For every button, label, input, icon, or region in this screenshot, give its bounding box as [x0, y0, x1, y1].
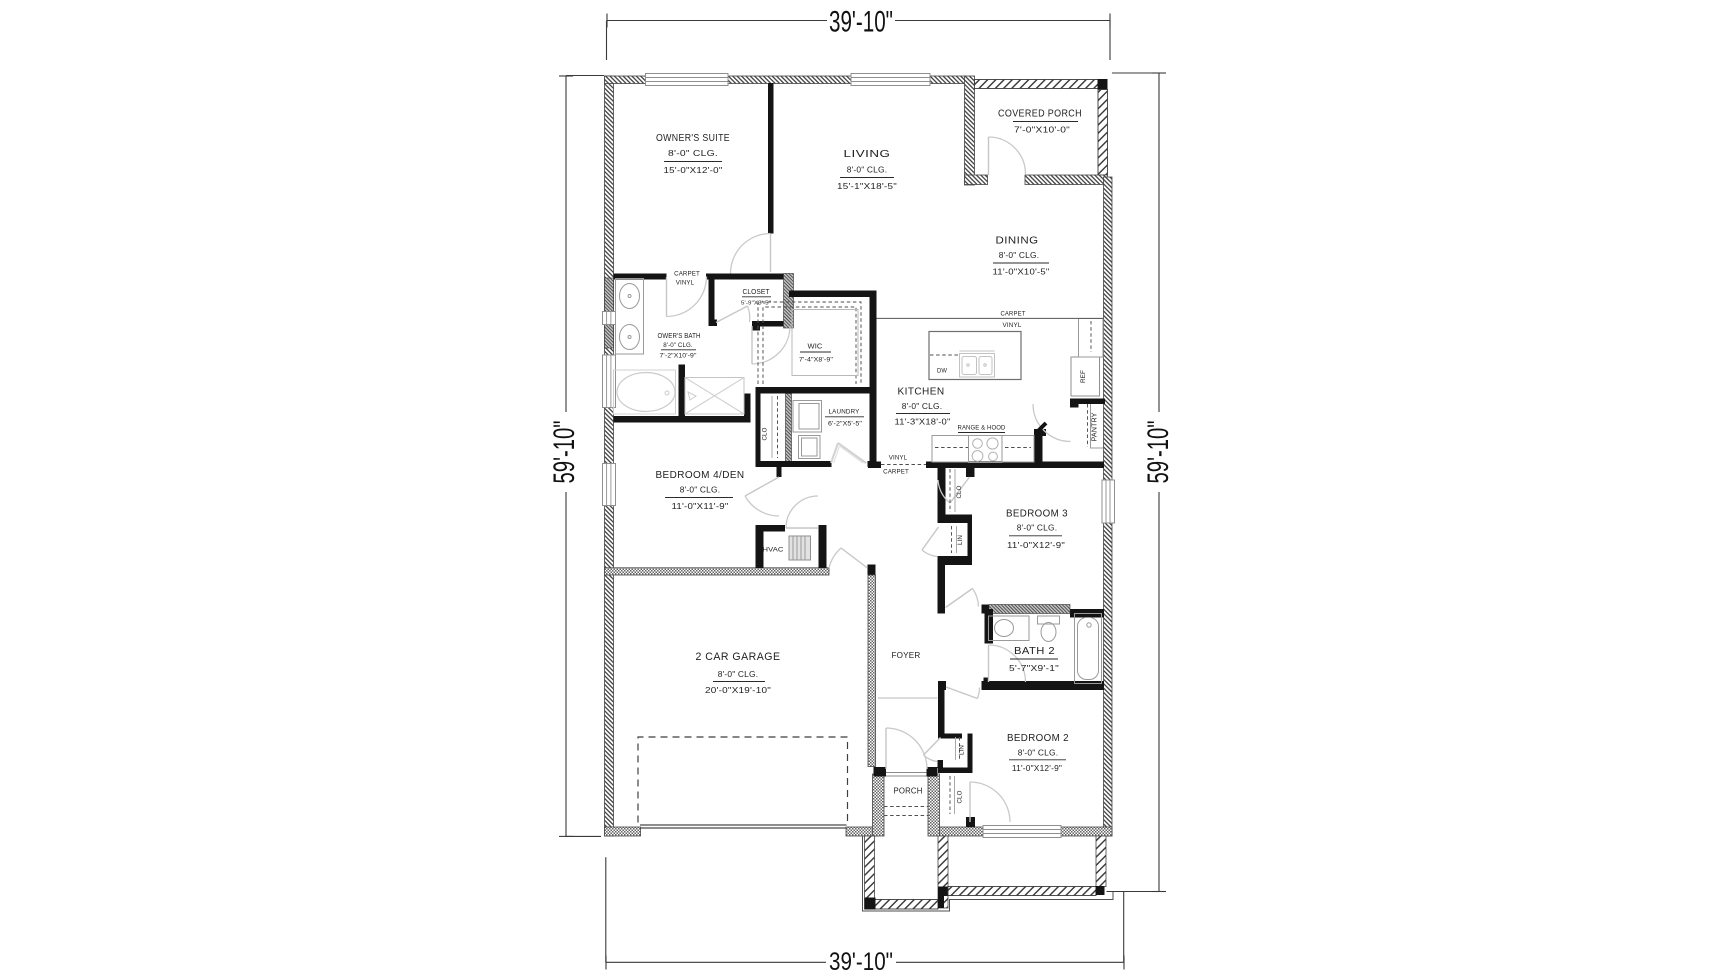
svg-text:8'-0" CLG.: 8'-0" CLG.: [718, 669, 759, 679]
svg-text:5'-7"X9'-1": 5'-7"X9'-1": [1009, 663, 1059, 673]
svg-text:CARPET: CARPET: [883, 469, 909, 476]
svg-text:DW: DW: [937, 368, 947, 375]
svg-text:CARPET: CARPET: [674, 271, 700, 278]
svg-text:8'-0" CLG.: 8'-0" CLG.: [999, 250, 1040, 260]
svg-text:REF: REF: [1080, 370, 1087, 383]
svg-text:15'-0"X12'-0": 15'-0"X12'-0": [664, 165, 723, 175]
svg-text:11'-0"X12'-9": 11'-0"X12'-9": [1007, 540, 1065, 550]
svg-text:LIN: LIN: [959, 745, 966, 755]
svg-text:20'-0"X19'-10": 20'-0"X19'-10": [705, 685, 771, 695]
svg-text:8'-0" CLG.: 8'-0" CLG.: [680, 485, 721, 495]
svg-text:7'-4"X8'-9": 7'-4"X8'-9": [799, 357, 833, 364]
svg-text:CLO: CLO: [956, 485, 963, 498]
svg-text:8'-0" CLG.: 8'-0" CLG.: [668, 148, 718, 158]
svg-text:7'-2"X10'-9": 7'-2"X10'-9": [660, 353, 697, 360]
svg-text:WIC: WIC: [808, 344, 823, 351]
svg-text:VINYL: VINYL: [889, 455, 908, 462]
svg-text:OWER'S BATH: OWER'S BATH: [658, 333, 701, 340]
svg-text:CLOSET: CLOSET: [743, 289, 771, 296]
svg-text:BEDROOM 4/DEN: BEDROOM 4/DEN: [656, 470, 745, 481]
svg-text:FOYER: FOYER: [892, 650, 921, 660]
svg-text:59'-10": 59'-10": [1142, 421, 1175, 484]
svg-text:15'-1"X18'-5": 15'-1"X18'-5": [837, 181, 897, 191]
svg-text:11'-3"X18'-0": 11'-3"X18'-0": [895, 417, 951, 427]
svg-text:11'-0"X11'-9": 11'-0"X11'-9": [672, 501, 729, 511]
svg-text:RANGE & HOOD: RANGE & HOOD: [958, 425, 1006, 432]
svg-text:CARPET: CARPET: [1001, 311, 1026, 318]
svg-text:HVAC: HVAC: [763, 547, 785, 554]
svg-text:LAUNDRY: LAUNDRY: [829, 409, 860, 416]
svg-text:COVERED PORCH: COVERED PORCH: [998, 109, 1082, 120]
svg-text:8'-0" CLG.: 8'-0" CLG.: [663, 342, 693, 349]
svg-text:11'-0"X10'-5": 11'-0"X10'-5": [993, 267, 1050, 277]
svg-text:VINYL: VINYL: [1003, 322, 1022, 329]
svg-text:LIVING: LIVING: [844, 149, 891, 160]
svg-text:39'-10": 39'-10": [829, 6, 893, 39]
svg-text:7'-0"X10'-0": 7'-0"X10'-0": [1014, 125, 1070, 135]
svg-text:LIN: LIN: [957, 535, 964, 545]
svg-text:OWNER'S SUITE: OWNER'S SUITE: [656, 133, 730, 144]
svg-text:BEDROOM 3: BEDROOM 3: [1006, 509, 1068, 520]
svg-text:DINING: DINING: [996, 236, 1039, 247]
svg-text:BEDROOM 2: BEDROOM 2: [1007, 733, 1069, 744]
svg-text:8'-0" CLG.: 8'-0" CLG.: [1018, 748, 1059, 758]
svg-text:KITCHEN: KITCHEN: [898, 387, 945, 398]
svg-text:PORCH: PORCH: [894, 786, 923, 796]
svg-text:CLO: CLO: [957, 790, 964, 803]
svg-text:BATH 2: BATH 2: [1014, 646, 1055, 657]
svg-text:8'-0" CLG.: 8'-0" CLG.: [1017, 523, 1058, 533]
svg-text:8'-0" CLG.: 8'-0" CLG.: [902, 401, 943, 411]
svg-text:PANTRY: PANTRY: [1092, 412, 1099, 441]
svg-text:6'-2"X5'-5": 6'-2"X5'-5": [828, 421, 862, 428]
svg-text:VINYL: VINYL: [676, 280, 695, 287]
svg-text:11'-0"X12'-9": 11'-0"X12'-9": [1012, 763, 1062, 773]
svg-text:59'-10": 59'-10": [548, 421, 581, 484]
svg-text:8'-0" CLG.: 8'-0" CLG.: [847, 165, 888, 175]
svg-text:CLO: CLO: [762, 427, 769, 440]
svg-text:5'-9"X3'-5": 5'-9"X3'-5": [741, 301, 771, 307]
svg-text:39'-10": 39'-10": [829, 948, 893, 976]
svg-text:2 CAR GARAGE: 2 CAR GARAGE: [696, 651, 781, 663]
